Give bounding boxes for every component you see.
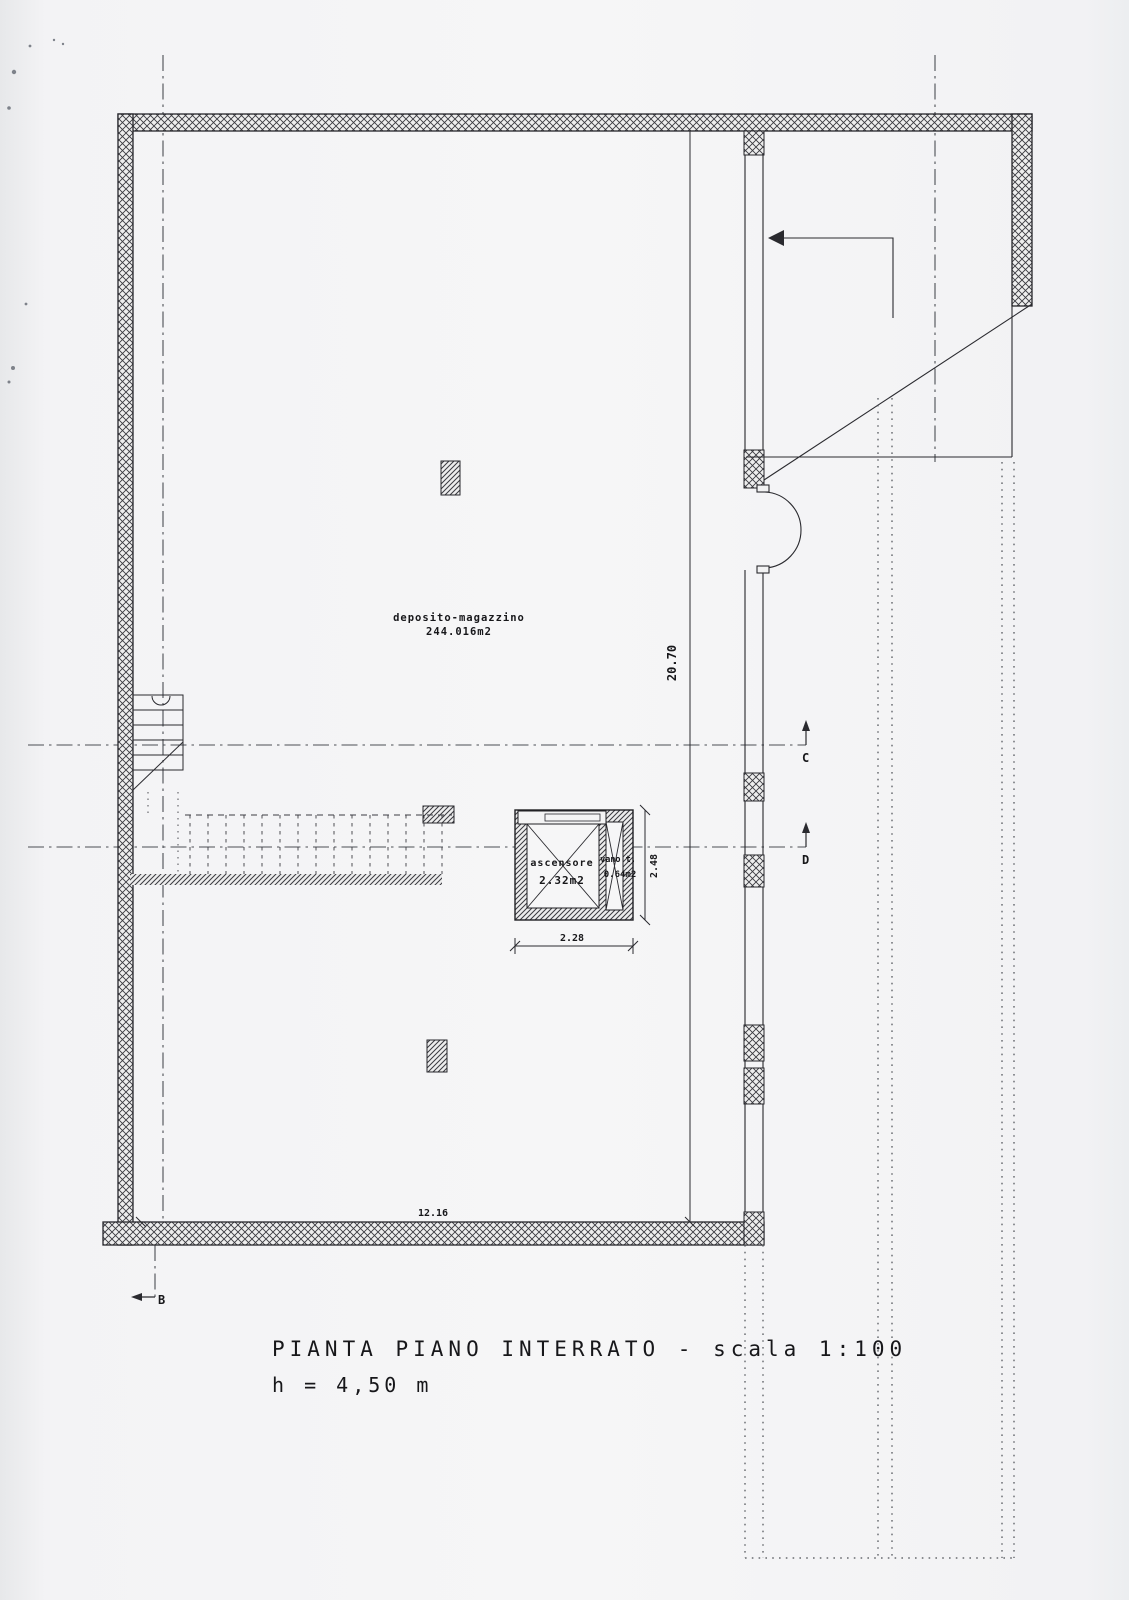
elevator-area-label: 2.32m2 — [539, 874, 585, 887]
section-b-arrow-icon — [131, 1293, 142, 1301]
stair-arc — [152, 696, 170, 705]
scanned-floor-plan-page: 20.70 ascensore 2.32m2 vano t. 0.64m2 — [0, 0, 1129, 1600]
wall-left — [118, 114, 133, 1245]
door-hinge-top — [757, 485, 769, 492]
right-strip-dotted — [745, 398, 1014, 1558]
wall-bottom — [103, 1222, 764, 1245]
elevator-depth-dim-value: 2.48 — [649, 854, 660, 878]
door-leaf-arc-bottom — [765, 530, 801, 568]
stair-outline — [133, 695, 183, 770]
double-door — [757, 485, 801, 573]
stair-treads — [133, 710, 183, 755]
corridor-piers — [744, 131, 764, 1245]
diagonal-line — [764, 304, 1032, 480]
centerlines — [28, 55, 935, 1297]
ramp-dashed-verticals — [190, 815, 442, 874]
elevator-door-sill — [518, 811, 606, 824]
wall-right-upper — [1012, 114, 1032, 306]
section-d-arrow-icon — [802, 822, 810, 833]
stair-break-line — [133, 742, 183, 790]
stairs — [133, 695, 183, 790]
elevator-name-label: ascensore — [530, 858, 593, 869]
entry-arrow-head-icon — [768, 230, 784, 246]
shaft-area-label: 0.64m2 — [604, 870, 637, 880]
elevator-block: ascensore 2.32m2 vano t. 0.64m2 — [515, 810, 636, 920]
plan-title: PIANTA PIANO INTERRATO - scala 1:100 — [272, 1337, 907, 1361]
overall-width-dim-value: 12.16 — [418, 1208, 448, 1219]
section-marker-b: B — [131, 1293, 165, 1307]
entry-arrow-line — [780, 238, 893, 318]
upper-right-area — [746, 230, 1032, 480]
door-hinge-bottom — [757, 566, 769, 573]
elevator-width-dim-value: 2.28 — [560, 933, 584, 944]
plan-height-note: h = 4,50 m — [272, 1373, 432, 1397]
section-marker-c: C — [802, 720, 810, 765]
wall-top — [118, 114, 1032, 131]
door-leaf-arc-top — [765, 492, 801, 530]
section-d-label: D — [802, 853, 809, 867]
pillar-2 — [423, 806, 454, 823]
section-c-arrow-icon — [802, 720, 810, 731]
storage-room-name: deposito-magazzino — [393, 612, 525, 624]
ramp-projection — [148, 792, 452, 874]
section-c-label: C — [802, 751, 809, 765]
pillar-1 — [441, 461, 460, 495]
section-marker-d: D — [802, 822, 810, 867]
pillar-3 — [427, 1040, 447, 1072]
pillars — [423, 461, 460, 1072]
section-b-label: B — [158, 1293, 165, 1307]
depth-dimension-value: 20.70 — [665, 645, 679, 681]
floor-plan-svg: 20.70 ascensore 2.32m2 vano t. 0.64m2 — [0, 0, 1129, 1600]
scan-artifacts — [7, 39, 64, 384]
shaft-name-label: vano t. — [600, 855, 636, 865]
ramp-hatched-strip — [130, 874, 442, 885]
storage-room-area: 244.016m2 — [426, 626, 492, 638]
